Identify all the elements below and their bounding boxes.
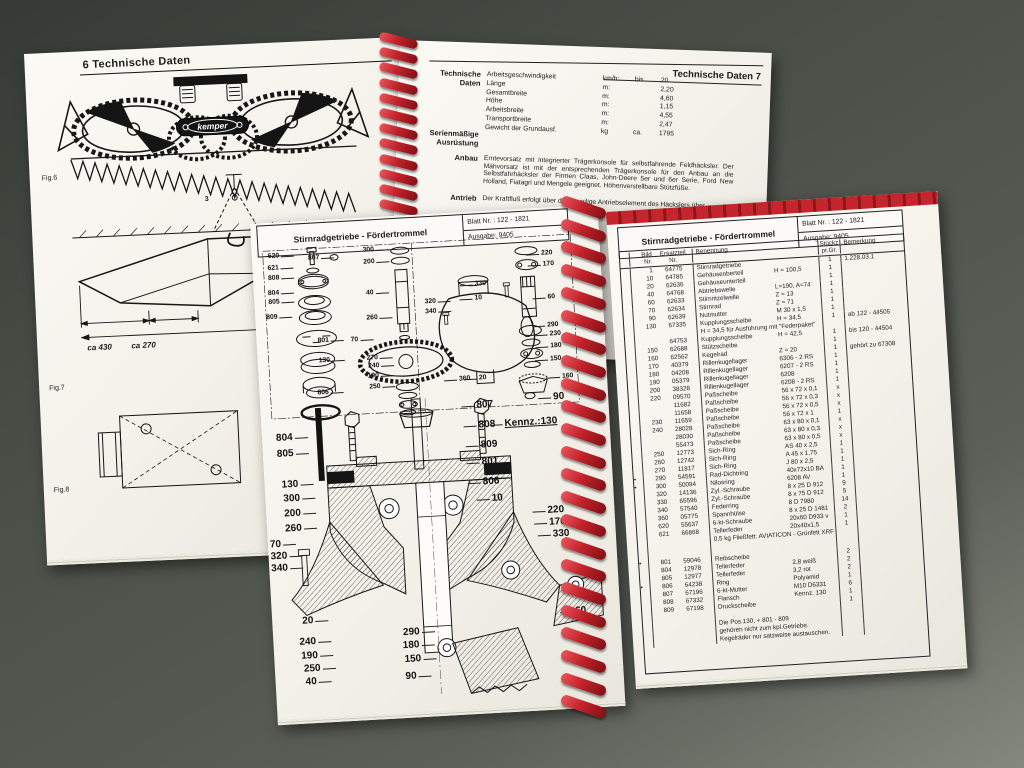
spec-qualifier: ca. xyxy=(633,129,659,139)
tech-spec-table: Arbeitsgeschwindigkeitkm/h:bis20Längem:2… xyxy=(485,71,703,140)
brand-text: kemper xyxy=(197,120,228,131)
part-number-label: 190 xyxy=(367,372,379,380)
fig6-caption: Fig.6 xyxy=(42,175,58,183)
part-number-label: 260 xyxy=(366,314,378,322)
part-number-label: 70 xyxy=(350,336,358,343)
part-number-label: 240 xyxy=(368,362,380,370)
kemper-badge: kemper xyxy=(176,116,249,136)
part-number-label: 190 xyxy=(301,650,318,662)
part-number-label: 130 xyxy=(281,479,298,491)
header-ersatzteil-nr: Ersatzteil Nr. xyxy=(654,249,693,265)
booklet-partslist-page: Stirnradgetriebe - Fördertrommel Blatt N… xyxy=(606,191,967,689)
photo-scene: 6 Technische Daten xyxy=(0,0,1024,768)
part-number-label: 320 xyxy=(270,550,287,562)
part-number-label: 270 xyxy=(366,354,378,362)
part-number-label: 807 xyxy=(476,399,493,411)
part-number-label: 806 xyxy=(482,475,499,487)
part-number-label: 20 xyxy=(302,615,314,627)
page-6-header: 6 Technische Daten xyxy=(82,54,190,71)
part-number-label: 808 xyxy=(268,274,280,282)
fig8-drawing xyxy=(95,404,249,503)
fig7-caption: Fig.7 xyxy=(49,384,65,392)
part-number-label: 805 xyxy=(277,448,294,460)
part-number-label: 290 xyxy=(547,321,559,329)
part-number-label: 806 xyxy=(317,389,329,397)
parts-table: Bild Nr.Ersatzteil Nr.BenennungStückz pr… xyxy=(618,233,930,674)
part-number-label: 70 xyxy=(270,539,282,551)
header-bild-nr: Bild Nr. xyxy=(629,251,655,267)
dim-ca430: ca 430 xyxy=(87,342,112,352)
part-number-label: 804 xyxy=(276,432,293,444)
header-bemerkung: Bemerkung xyxy=(839,236,902,254)
part-number-label: 230 xyxy=(549,330,561,338)
part-number-label: 809 xyxy=(480,439,497,451)
part-number-label: 180 xyxy=(550,342,562,350)
part-number-label: 220 xyxy=(547,504,564,516)
part-number-label: 805 xyxy=(268,298,280,306)
part-number-label: 150 xyxy=(404,653,421,665)
part-number-label: 170 xyxy=(543,260,555,268)
part-number-label: 200 xyxy=(284,508,301,520)
part-number-label: 60 xyxy=(547,293,555,300)
spec-value: 1795 xyxy=(659,130,701,140)
part-number-label: 300 xyxy=(362,246,374,254)
part-number-label: 20 xyxy=(479,374,487,381)
part-number-label: 804 xyxy=(268,289,280,297)
part-number-label: 250 xyxy=(369,383,381,391)
part-number-label: 801 xyxy=(481,456,498,468)
fig8-caption: Fig.8 xyxy=(54,486,70,494)
part-number-label: 330 xyxy=(475,280,487,288)
part-number-label: 40 xyxy=(305,676,317,688)
part-number-label: 250 xyxy=(304,663,321,675)
part-number-label: 220 xyxy=(541,249,553,257)
part-number-label: 300 xyxy=(283,493,300,505)
spec-unit: kg xyxy=(601,128,633,138)
part-number-label: 180 xyxy=(402,639,419,651)
part-number-label: 620 xyxy=(268,252,280,260)
header-stueckzahl: Stückz pr.Gr. xyxy=(817,239,840,254)
part-number-label: 240 xyxy=(299,636,316,648)
part-number-label: 340 xyxy=(271,562,288,574)
part-number-label: 340 xyxy=(425,308,437,316)
part-number-label: 621 xyxy=(267,264,279,272)
dim-ca270: ca 270 xyxy=(131,340,156,350)
anbau-text: Erntevorsatz mit integrierter Trägerkons… xyxy=(483,155,734,194)
part-number-label: 10 xyxy=(474,294,482,301)
hoist-label: 3 xyxy=(205,196,209,203)
part-number-label: 260 xyxy=(285,523,302,535)
part-number-label: 10 xyxy=(491,492,503,504)
part-number-label: 200 xyxy=(363,258,375,266)
part-number-label: 807 xyxy=(308,254,320,262)
part-number-label: 801 xyxy=(317,337,329,345)
part-number-label: 130 xyxy=(319,357,331,365)
part-number-label: 320 xyxy=(424,298,436,306)
part-number-label: 40 xyxy=(366,289,374,296)
part-number-label: 90 xyxy=(405,670,417,682)
part-number-label: 809 xyxy=(266,314,278,322)
part-number-label: 290 xyxy=(403,626,420,638)
fig6-drawing: kemper xyxy=(53,66,372,182)
booklet-diagram-page: Stirnradgetriebe - Fördertrommel Blatt N… xyxy=(250,205,625,726)
